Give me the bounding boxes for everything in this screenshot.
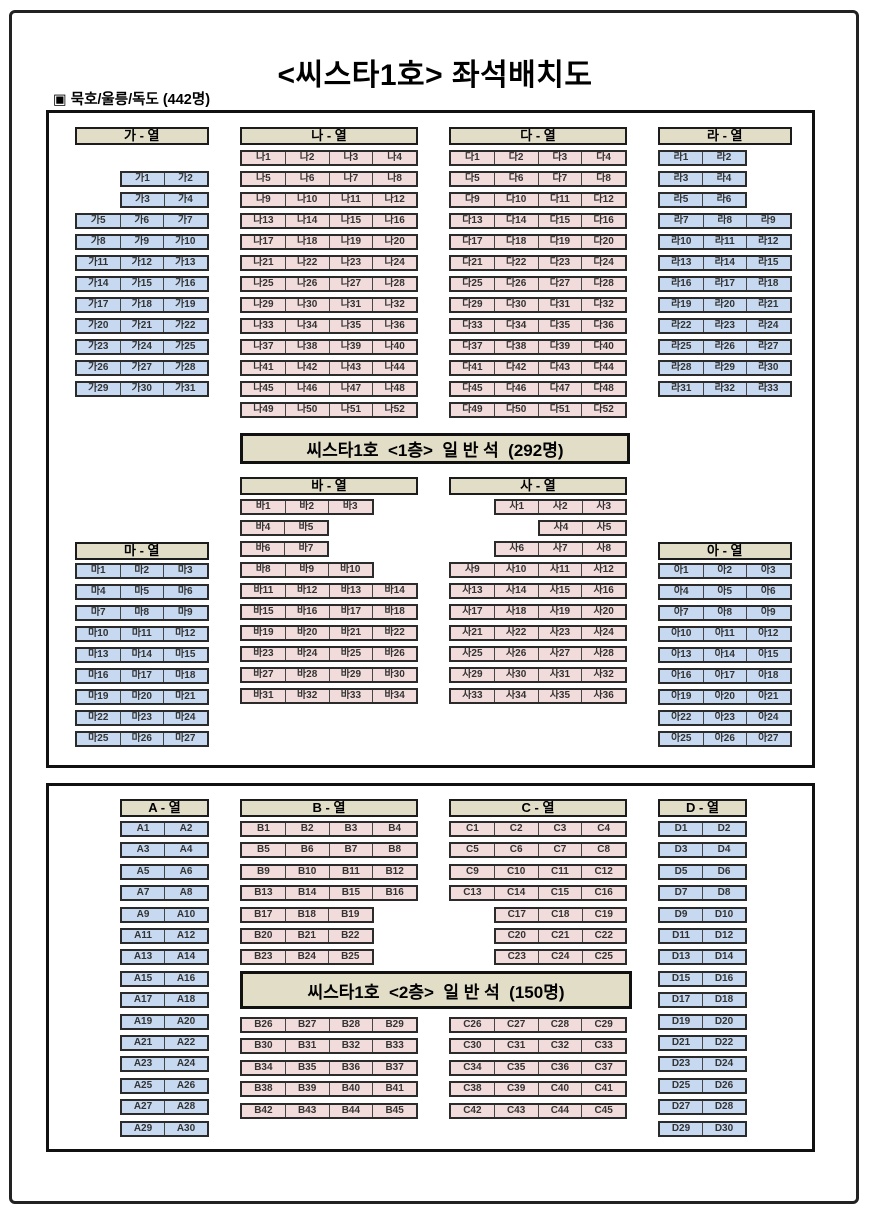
seat-row: 가8가9가10 (75, 234, 209, 250)
seat: 라9 (746, 215, 790, 227)
seat: 나36 (372, 320, 416, 332)
col-header-ma: 마 - 열 (75, 542, 209, 560)
seat-row: 라22라23라24 (658, 318, 792, 334)
seat: 마24 (163, 712, 207, 724)
seat: B37 (372, 1062, 416, 1074)
seat: C31 (494, 1040, 538, 1052)
seat: 사2 (538, 501, 582, 513)
seat: 바9 (285, 564, 329, 576)
seat-row: 다5다6다7다8 (449, 171, 627, 187)
seat: B17 (242, 909, 285, 921)
seat: A21 (122, 1037, 164, 1049)
seat: 가7 (163, 215, 207, 227)
deck2-outline (46, 783, 815, 1152)
seat-row: 나17나18나19나20 (240, 234, 418, 250)
seat: 나39 (329, 341, 373, 353)
seat-row: A13A14 (120, 949, 209, 965)
seat: 라25 (660, 341, 703, 353)
seat-row: 라5라6 (658, 192, 747, 208)
seat: 마19 (77, 691, 120, 703)
seat-row: A29A30 (120, 1121, 209, 1137)
seat: 가18 (120, 299, 164, 311)
seat: 나42 (285, 362, 329, 374)
seat: 다52 (581, 404, 625, 416)
seat: D7 (660, 887, 702, 899)
seat: 아18 (746, 670, 790, 682)
seat: 나24 (372, 257, 416, 269)
seat-row: 마1마2마3 (75, 563, 209, 579)
seat-row: A11A12 (120, 928, 209, 944)
seat-row: 다13다14다15다16 (449, 213, 627, 229)
seat-row: 사13사14사15사16 (449, 583, 627, 599)
seat: C6 (494, 844, 538, 856)
seat: 바10 (328, 564, 372, 576)
seat-row: 라16라17라18 (658, 276, 792, 292)
seat: 사26 (494, 648, 538, 660)
seat: 마4 (77, 586, 120, 598)
seat: 바14 (372, 585, 416, 597)
seat: D14 (702, 951, 745, 963)
seat: D10 (702, 909, 745, 921)
seat: 나51 (329, 404, 373, 416)
seat-row: 바6바7 (240, 541, 329, 557)
seat: 나16 (372, 215, 416, 227)
seat-row: 나21나22나23나24 (240, 255, 418, 271)
seat: 다23 (538, 257, 582, 269)
seat: 사9 (451, 564, 494, 576)
seat: 바2 (285, 501, 329, 513)
seat-row: 마10마11마12 (75, 626, 209, 642)
seat: C21 (538, 930, 582, 942)
seat-row: 라1라2 (658, 150, 747, 166)
seat: B15 (329, 887, 373, 899)
seat: 사34 (494, 690, 538, 702)
seat: 사3 (582, 501, 626, 513)
seat: 라26 (703, 341, 747, 353)
seat: 사33 (451, 690, 494, 702)
seat: 다43 (538, 362, 582, 374)
seat-chart-page: <씨스타1호> 좌석배치도 ▣ 묵호/울릉/독도 (442명) 씨스타1호 <1… (0, 0, 870, 1215)
seat: 바28 (285, 669, 329, 681)
seat: 아23 (703, 712, 747, 724)
seat-row: 나9나10나11나12 (240, 192, 418, 208)
seat-row: A23A24 (120, 1056, 209, 1072)
seat: 라32 (703, 383, 747, 395)
seat: 다16 (581, 215, 625, 227)
seat: 라5 (660, 194, 702, 206)
seat-row: 다29다30다31다32 (449, 297, 627, 313)
seat: 바17 (329, 606, 373, 618)
seat-row: 바19바20바21바22 (240, 625, 418, 641)
seat: D17 (660, 994, 702, 1006)
seat: 마25 (77, 733, 120, 745)
seat: 나41 (242, 362, 285, 374)
seat-row: B38B39B40B41 (240, 1081, 418, 1097)
seat: 바27 (242, 669, 285, 681)
seat: B7 (329, 844, 373, 856)
seat: 라4 (702, 173, 745, 185)
seat: 다2 (494, 152, 538, 164)
seat-row: 아25아26아27 (658, 731, 792, 747)
seat: 가14 (77, 278, 120, 290)
seat: 나52 (372, 404, 416, 416)
seat: 아22 (660, 712, 703, 724)
seat: A24 (164, 1058, 207, 1070)
seat: 사30 (494, 669, 538, 681)
seat-row: 마19마20마21 (75, 689, 209, 705)
seat: 가29 (77, 383, 120, 395)
seat: B14 (285, 887, 329, 899)
seat-row: A15A16 (120, 971, 209, 987)
seat: 아15 (746, 649, 790, 661)
route-capacity-label: ▣ 묵호/울릉/독도 (442명) (53, 88, 210, 109)
seat: 가1 (122, 173, 164, 185)
seat: 가31 (163, 383, 207, 395)
seat-row: 사29사30사31사32 (449, 667, 627, 683)
seat-row: B34B35B36B37 (240, 1060, 418, 1076)
seat-row: A9A10 (120, 907, 209, 923)
seat: D5 (660, 866, 702, 878)
seat-row: C38C39C40C41 (449, 1081, 627, 1097)
seat: 라3 (660, 173, 702, 185)
seat-row: 아19아20아21 (658, 689, 792, 705)
seat: 다6 (494, 173, 538, 185)
seat: B45 (372, 1105, 416, 1117)
seat-row: B23B24B25 (240, 949, 374, 965)
seat: A12 (164, 930, 207, 942)
seat: 아6 (746, 586, 790, 598)
seat: 다25 (451, 278, 494, 290)
seat: 아2 (703, 565, 747, 577)
seat: 마8 (120, 607, 164, 619)
seat: D24 (702, 1058, 745, 1070)
seat: 가16 (163, 278, 207, 290)
seat: A7 (122, 887, 164, 899)
seat: 나13 (242, 215, 285, 227)
seat: D18 (702, 994, 745, 1006)
seat-row: 나25나26나27나28 (240, 276, 418, 292)
seat: B26 (242, 1019, 285, 1031)
seat-row: C26C27C28C29 (449, 1017, 627, 1033)
seat: 나35 (329, 320, 373, 332)
seat: B27 (285, 1019, 329, 1031)
seat: 아3 (746, 565, 790, 577)
seat-row: A1A2 (120, 821, 209, 837)
seat: 다18 (494, 236, 538, 248)
seat: 라7 (660, 215, 703, 227)
seat: 바16 (285, 606, 329, 618)
seat: D25 (660, 1080, 702, 1092)
seat: A29 (122, 1123, 164, 1135)
seat: 나27 (329, 278, 373, 290)
seat: 바25 (329, 648, 373, 660)
seat: 사36 (581, 690, 625, 702)
seat-row: 나49나50나51나52 (240, 402, 418, 418)
seat: 나45 (242, 383, 285, 395)
seat-row: C23C24C25 (494, 949, 628, 965)
seat: 사6 (496, 543, 539, 555)
seat: 마6 (163, 586, 207, 598)
seat-row: 사6사7사8 (494, 541, 628, 557)
seat: A1 (122, 823, 164, 835)
seat: D4 (702, 844, 745, 856)
seat: B23 (242, 951, 285, 963)
seat: 사24 (581, 627, 625, 639)
seat: 바23 (242, 648, 285, 660)
seat: B5 (242, 844, 285, 856)
seat-row: D3D4 (658, 842, 747, 858)
seat: 나28 (372, 278, 416, 290)
seat: 다13 (451, 215, 494, 227)
seat: A5 (122, 866, 164, 878)
seat-row: 아10아11아12 (658, 626, 792, 642)
seat: C29 (581, 1019, 625, 1031)
seat: D30 (702, 1123, 745, 1135)
seat: 라16 (660, 278, 703, 290)
seat: 아21 (746, 691, 790, 703)
seat: 사15 (538, 585, 582, 597)
seat: A19 (122, 1016, 164, 1028)
seat: 마11 (120, 628, 164, 640)
seat: 바22 (372, 627, 416, 639)
seat: 바21 (329, 627, 373, 639)
seat-row: 다21다22다23다24 (449, 255, 627, 271)
seat: 다28 (581, 278, 625, 290)
seat: 바8 (242, 564, 285, 576)
seat-row: 바15바16바17바18 (240, 604, 418, 620)
seat: A22 (164, 1037, 207, 1049)
seat: D26 (702, 1080, 745, 1092)
seat-row: 다41다42다43다44 (449, 360, 627, 376)
seat: D29 (660, 1123, 702, 1135)
seat-row: D11D12 (658, 928, 747, 944)
seat-row: A5A6 (120, 864, 209, 880)
seat-row: 나37나38나39나40 (240, 339, 418, 355)
seat: 아20 (703, 691, 747, 703)
seat-row: 라10라11라12 (658, 234, 792, 250)
seat-row: 아1아2아3 (658, 563, 792, 579)
seat: 다30 (494, 299, 538, 311)
seat: 라11 (703, 236, 747, 248)
seat-row: 가20가21가22 (75, 318, 209, 334)
seat: 다37 (451, 341, 494, 353)
col-header-ah: 아 - 열 (658, 542, 792, 560)
seat: D2 (702, 823, 745, 835)
seat: 아19 (660, 691, 703, 703)
seat: 가2 (164, 173, 207, 185)
seat: B24 (285, 951, 329, 963)
seat: 마5 (120, 586, 164, 598)
seat: B34 (242, 1062, 285, 1074)
seat: 라22 (660, 320, 703, 332)
seat: C2 (494, 823, 538, 835)
seat: 바34 (372, 690, 416, 702)
seat-row: 나45나46나47나48 (240, 381, 418, 397)
seat: 나50 (285, 404, 329, 416)
seat: 사23 (538, 627, 582, 639)
seat-row: B42B43B44B45 (240, 1103, 418, 1119)
seat: 다10 (494, 194, 538, 206)
seat: A10 (164, 909, 207, 921)
seat: B38 (242, 1083, 285, 1095)
seat: C4 (581, 823, 625, 835)
seat: B21 (285, 930, 329, 942)
seat: C32 (538, 1040, 582, 1052)
seat: 나19 (329, 236, 373, 248)
seat-row: 가5가6가7 (75, 213, 209, 229)
seat: A6 (164, 866, 207, 878)
seat: D12 (702, 930, 745, 942)
seat: 나14 (285, 215, 329, 227)
seat: 나11 (329, 194, 373, 206)
seat-row: C9C10C11C12 (449, 864, 627, 880)
seat: 가8 (77, 236, 120, 248)
seat: 가19 (163, 299, 207, 311)
seat: 바5 (284, 522, 327, 534)
seat: B1 (242, 823, 285, 835)
seat: C40 (538, 1083, 582, 1095)
seat: B41 (372, 1083, 416, 1095)
seat: 나20 (372, 236, 416, 248)
seat: 다24 (581, 257, 625, 269)
seat: 나15 (329, 215, 373, 227)
seat-row: B13B14B15B16 (240, 885, 418, 901)
seat: C23 (496, 951, 539, 963)
seat: 나17 (242, 236, 285, 248)
seat-row: 사9사10사11사12 (449, 562, 627, 578)
seat: 다45 (451, 383, 494, 395)
seat: 라27 (746, 341, 790, 353)
seat: 다21 (451, 257, 494, 269)
seat: 라29 (703, 362, 747, 374)
seat: C33 (581, 1040, 625, 1052)
seat: 아12 (746, 628, 790, 640)
seat: 라24 (746, 320, 790, 332)
seat-row: B20B21B22 (240, 928, 374, 944)
seat: 다44 (581, 362, 625, 374)
seat-row: A7A8 (120, 885, 209, 901)
seat: 사20 (581, 606, 625, 618)
seat: C8 (581, 844, 625, 856)
col-header-C-upper: C - 열 (449, 799, 627, 817)
seat: A26 (164, 1080, 207, 1092)
seat: 나49 (242, 404, 285, 416)
seat: D21 (660, 1037, 702, 1049)
seat-row: 아22아23아24 (658, 710, 792, 726)
seat-row: 사25사26사27사28 (449, 646, 627, 662)
seat: C30 (451, 1040, 494, 1052)
seat: 다27 (538, 278, 582, 290)
seat: 마20 (120, 691, 164, 703)
seat: 바7 (284, 543, 327, 555)
seat: 마7 (77, 607, 120, 619)
seat: 라8 (703, 215, 747, 227)
seat: D27 (660, 1101, 702, 1113)
seat: 마15 (163, 649, 207, 661)
col-header-ga: 가 - 열 (75, 127, 209, 145)
seat: 사32 (581, 669, 625, 681)
seat: 사1 (496, 501, 539, 513)
seat: 아4 (660, 586, 703, 598)
seat: B43 (285, 1105, 329, 1117)
seat: 가24 (120, 341, 164, 353)
seat: B6 (285, 844, 329, 856)
seat: 사7 (538, 543, 582, 555)
seat-row: 바4바5 (240, 520, 329, 536)
seat: 라1 (660, 152, 702, 164)
seat: 나7 (329, 173, 373, 185)
seat: 마17 (120, 670, 164, 682)
seat: 나44 (372, 362, 416, 374)
seat: 바19 (242, 627, 285, 639)
seat: 사4 (540, 522, 582, 534)
seat: 다47 (538, 383, 582, 395)
seat: B31 (285, 1040, 329, 1052)
seat: 사22 (494, 627, 538, 639)
seat-row: 라13라14라15 (658, 255, 792, 271)
seat: B36 (329, 1062, 373, 1074)
seat: 마1 (77, 565, 120, 577)
seat: 다3 (538, 152, 582, 164)
seat: 마21 (163, 691, 207, 703)
seat: A27 (122, 1101, 164, 1113)
seat: 사28 (581, 648, 625, 660)
seat: 다39 (538, 341, 582, 353)
seat: B19 (328, 909, 372, 921)
seat: D8 (702, 887, 745, 899)
seat: 바20 (285, 627, 329, 639)
seat: 나38 (285, 341, 329, 353)
seat: B32 (329, 1040, 373, 1052)
seat: C3 (538, 823, 582, 835)
seat-row: B26B27B28B29 (240, 1017, 418, 1033)
seat-row: C5C6C7C8 (449, 842, 627, 858)
seat-row: 아13아14아15 (658, 647, 792, 663)
seat: 나25 (242, 278, 285, 290)
seat: B11 (329, 866, 373, 878)
seat: 사14 (494, 585, 538, 597)
seat-row: 가29가30가31 (75, 381, 209, 397)
seat-row: B1B2B3B4 (240, 821, 418, 837)
seat-row: 바27바28바29바30 (240, 667, 418, 683)
seat-row: D7D8 (658, 885, 747, 901)
seat: 라28 (660, 362, 703, 374)
seat: B39 (285, 1083, 329, 1095)
seat: 나4 (372, 152, 416, 164)
seat: B42 (242, 1105, 285, 1117)
seat-row: A21A22 (120, 1035, 209, 1051)
seat: 가30 (120, 383, 164, 395)
seat: 다26 (494, 278, 538, 290)
seat: 라13 (660, 257, 703, 269)
seat-row: 나33나34나35나36 (240, 318, 418, 334)
seat: 나23 (329, 257, 373, 269)
seat: 라20 (703, 299, 747, 311)
seat: 다38 (494, 341, 538, 353)
seat: 다35 (538, 320, 582, 332)
seat: 아14 (703, 649, 747, 661)
seat-row: 다37다38다39다40 (449, 339, 627, 355)
seat: 라14 (703, 257, 747, 269)
col-header-ra: 라 - 열 (658, 127, 792, 145)
seat: 라30 (746, 362, 790, 374)
seat: C7 (538, 844, 582, 856)
seat-row: 다9다10다11다12 (449, 192, 627, 208)
seat: 다29 (451, 299, 494, 311)
seat: 나2 (285, 152, 329, 164)
seat-row: 라31라32라33 (658, 381, 792, 397)
seat-row: 나29나30나31나32 (240, 297, 418, 313)
